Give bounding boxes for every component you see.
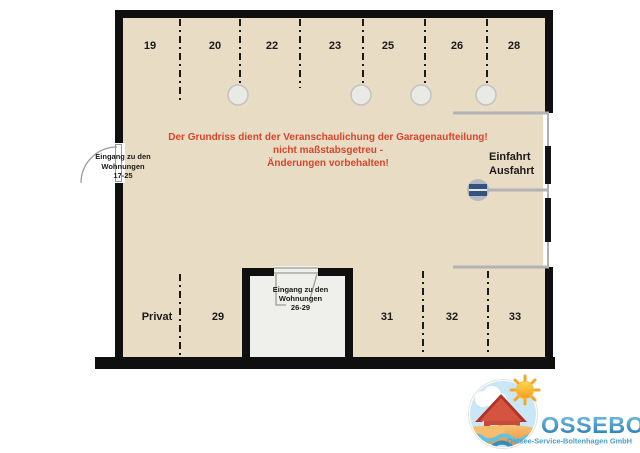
stall-label-22: 22: [247, 40, 297, 53]
stall-label-26: 26: [432, 40, 482, 53]
stairwell-note-line1: Eingang zu den: [252, 285, 349, 294]
stall-label-25: 25: [363, 40, 413, 53]
pillar-icon: [476, 85, 496, 105]
disclaimer-line-1: Der Grundriss dient der Veranschaulichun…: [158, 131, 498, 144]
stall-label-31: 31: [362, 311, 412, 324]
stall-label-28: 28: [489, 40, 539, 53]
stairwell-note-line2: Wohnungen: [252, 294, 349, 303]
disclaimer-text: Der Grundriss dient der Veranschaulichun…: [158, 131, 498, 170]
left-entrance-note-line2: Wohnungen: [73, 162, 173, 172]
exit-label: Ausfahrt: [489, 164, 534, 178]
stairwell-entrance-note: Eingang zu den Wohnungen 26-29: [252, 285, 349, 312]
company-logo: OSSEBO Ostsee-Service-Boltenhagen GmbH: [435, 372, 640, 453]
stall-label-20: 20: [190, 40, 240, 53]
logo-subtitle: Ostsee-Service-Boltenhagen GmbH: [507, 437, 632, 446]
logo-wordmark: OSSEBO: [541, 412, 640, 438]
stall-dividers-top: [180, 19, 487, 100]
disclaimer-line-3: Änderungen vorbehalten!: [158, 157, 498, 170]
stairwell-note-line3: 26-29: [252, 303, 349, 312]
pillar-icon: [411, 85, 431, 105]
left-entrance-note-line1: Eingang zu den: [73, 152, 173, 162]
disclaimer-line-2: nicht maßstabsgetreu -: [158, 144, 498, 157]
pillar-icon: [351, 85, 371, 105]
left-entrance-note-line3: 17-25: [73, 171, 173, 181]
stall-label-29: 29: [193, 311, 243, 324]
barrier-gate-icon: [467, 179, 549, 201]
stall-label-23: 23: [310, 40, 360, 53]
garage-floorplan-image: 19 20 22 23 25 26 28 Privat 29 31 32 33 …: [0, 0, 640, 453]
entrance-label: Einfahrt: [489, 150, 534, 164]
pillar-icon: [228, 85, 248, 105]
sun-icon: [511, 376, 539, 404]
left-entrance-note: Eingang zu den Wohnungen 17-25: [73, 152, 173, 181]
stall-label-19: 19: [125, 40, 175, 53]
stall-label-32: 32: [427, 311, 477, 324]
pillar-icons: [228, 85, 496, 105]
stall-label-privat: Privat: [127, 311, 187, 324]
stall-label-33: 33: [490, 311, 540, 324]
entrance-exit-label: Einfahrt Ausfahrt: [489, 150, 534, 178]
